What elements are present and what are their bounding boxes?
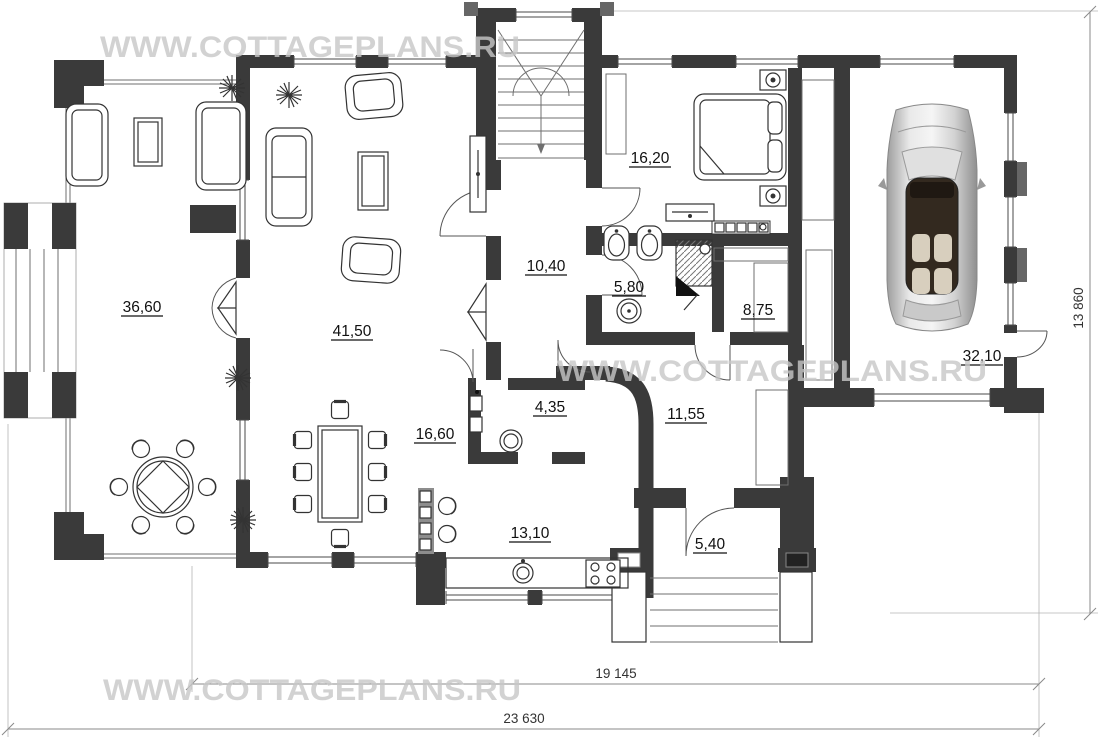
sofa-icon [196, 102, 246, 190]
nightstand-icon [760, 186, 786, 206]
coffee-table-icon [134, 118, 162, 166]
armchair-icon [344, 72, 404, 121]
window [1004, 197, 1017, 247]
sink-icon [513, 559, 533, 583]
coffee-table-icon [358, 152, 388, 210]
room-label-hallway: 10,40 [527, 258, 566, 275]
window [446, 590, 528, 605]
window [268, 552, 332, 568]
round-table-icon [110, 437, 216, 537]
window [618, 55, 672, 68]
stove-icon [586, 560, 620, 587]
garage-wall-niche [802, 80, 834, 220]
door-garage-side [1017, 331, 1047, 357]
watermark-bottom: WWW.COTTAGEPLANS.RU [103, 674, 521, 707]
window [1004, 113, 1017, 161]
room-label-hall: 11,55 [667, 406, 705, 423]
car-icon [878, 104, 986, 331]
door-wc [440, 349, 473, 382]
sink-icon [604, 226, 629, 260]
dimension-bottom-inner: 19 145 [595, 666, 636, 681]
room-label-wc: 4,35 [535, 399, 565, 416]
bathroom-fixtures [604, 226, 712, 323]
window [236, 420, 250, 480]
room-label-terrace: 36,60 [123, 299, 162, 316]
armchair-icon [341, 236, 402, 284]
room-label-porch: 5,40 [695, 536, 726, 553]
bedroom-furniture [666, 70, 786, 221]
window [736, 55, 798, 68]
nightstand-icon [760, 70, 786, 90]
window [880, 55, 954, 68]
floor-plan-drawing: 36,60 41,50 16,60 13,10 10,40 5,80 4,35 … [0, 0, 1102, 741]
room-label-wardrobe: 8,75 [743, 302, 773, 319]
room-label-dining-area: 16,60 [416, 426, 455, 443]
opening-living-leaves [468, 284, 486, 340]
bed-icon [694, 94, 786, 180]
dresser-icon [666, 204, 714, 221]
room-label-kitchen: 13,10 [511, 525, 550, 542]
room-labels: 36,60 41,50 16,60 13,10 10,40 5,80 4,35 … [121, 150, 1003, 553]
watermark-middle: WWW.COTTAGEPLANS.RU [557, 355, 987, 388]
dining-table-icon [318, 426, 362, 522]
washing-machine-icon [617, 299, 641, 323]
sofa-icon [66, 104, 108, 186]
living-furniture [266, 72, 486, 284]
window [1004, 283, 1017, 325]
window [354, 552, 416, 568]
sink-icon [637, 226, 662, 260]
sofa-icon [266, 128, 312, 226]
dining-furniture [295, 402, 386, 547]
room-label-bedroom: 16,20 [631, 150, 670, 167]
vent-block [712, 221, 770, 234]
window [542, 590, 612, 605]
room-label-living-room: 41,50 [333, 323, 372, 340]
watermark-top: WWW.COTTAGEPLANS.RU [100, 31, 520, 64]
dimension-bottom-outer: 23 630 [503, 711, 544, 726]
door-terrace-french [212, 278, 236, 338]
door-bedroom [602, 188, 640, 226]
floor-plan-page: 36,60 41,50 16,60 13,10 10,40 5,80 4,35 … [0, 0, 1102, 741]
tv-cabinet-icon [470, 136, 486, 212]
window [874, 388, 990, 407]
room-label-bathroom: 5,80 [614, 279, 645, 296]
dimension-right-vertical: 13 860 [1071, 287, 1086, 328]
window [516, 8, 572, 22]
shower-icon [676, 240, 712, 310]
